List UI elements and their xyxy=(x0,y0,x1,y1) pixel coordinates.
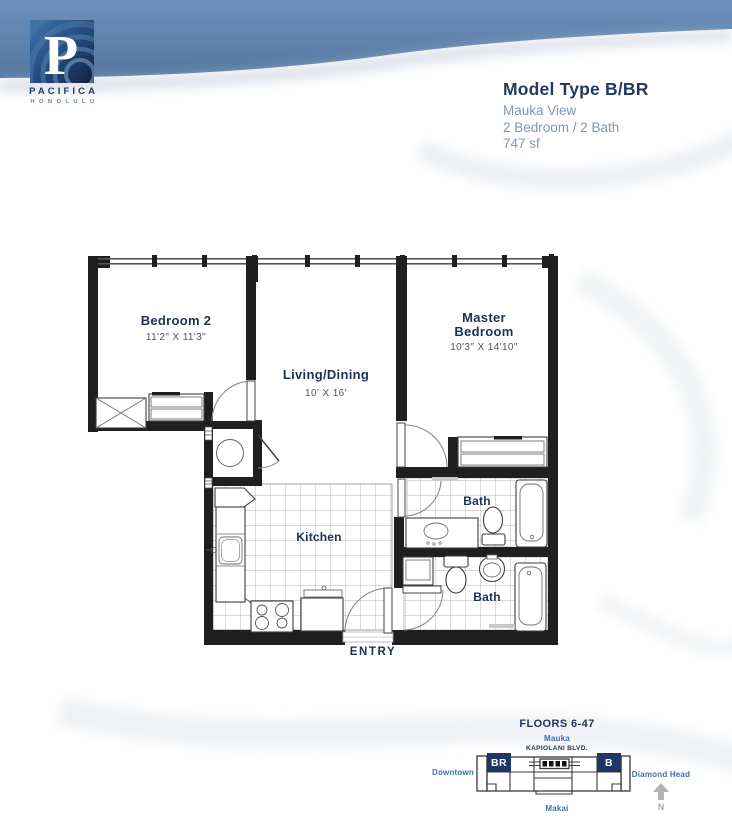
logo-monogram: P xyxy=(44,25,78,87)
stove xyxy=(251,601,293,632)
area-label: 747 sf xyxy=(503,136,649,153)
compass-north-icon: N xyxy=(653,783,669,812)
keyplan-street-label: KAPIOLANI BLVD. xyxy=(526,745,588,752)
entry-label: ENTRY xyxy=(350,646,397,658)
living-label: Living/Dining xyxy=(283,367,369,382)
bedroom2-label: Bedroom 2 xyxy=(141,313,212,328)
bathtub-upper xyxy=(516,480,547,547)
towel-bar xyxy=(432,477,458,481)
toilet-lower xyxy=(444,556,468,593)
keyplan-downtown-label: Downtown xyxy=(432,768,474,777)
master-dims: 10'3" X 14'10" xyxy=(450,342,518,353)
unit-br-label: BR xyxy=(491,757,507,769)
compass-north-label: N xyxy=(658,802,665,812)
master-label-line1: Master xyxy=(462,310,506,325)
keyplan-mauka-label: Mauka xyxy=(544,734,570,743)
flyer-page: P xyxy=(0,0,732,837)
cabinet-lower xyxy=(403,557,433,585)
keyplan-makai-label: Makai xyxy=(545,804,568,813)
title-block: Model Type B/BR Mauka View 2 Bedroom / 2… xyxy=(503,79,649,153)
building-outline: BR B xyxy=(477,753,630,794)
kitchen-label: Kitchen xyxy=(296,530,341,544)
config-label: 2 Bedroom / 2 Bath xyxy=(503,120,649,137)
bath-lower-label: Bath xyxy=(473,590,500,604)
keyplan-floors-label: FLOORS 6-47 xyxy=(519,718,594,730)
model-title: Model Type B/BR xyxy=(503,79,649,100)
bath-upper-label: Bath xyxy=(463,494,490,508)
brand-name: PACIFICA xyxy=(26,86,98,97)
towel-bar xyxy=(489,624,515,628)
living-dims: 10' X 16' xyxy=(305,388,347,399)
unit-b-label: B xyxy=(605,757,613,769)
master-closet xyxy=(458,436,547,467)
brand-city: HONOLULU xyxy=(26,99,98,105)
view-label: Mauka View xyxy=(503,103,649,120)
dishwasher xyxy=(301,586,343,631)
bedroom2-dims: 11'2" X 11'3" xyxy=(146,332,206,343)
bathtub-lower xyxy=(515,563,546,631)
vanity-sink-upper xyxy=(406,518,478,548)
keyplan-diamond-head-label: Diamond Head xyxy=(632,770,690,779)
master-label-line2: Bedroom xyxy=(454,324,513,339)
floorplan: Bedroom 2 11'2" X 11'3" Living/Dining 10… xyxy=(88,254,558,658)
